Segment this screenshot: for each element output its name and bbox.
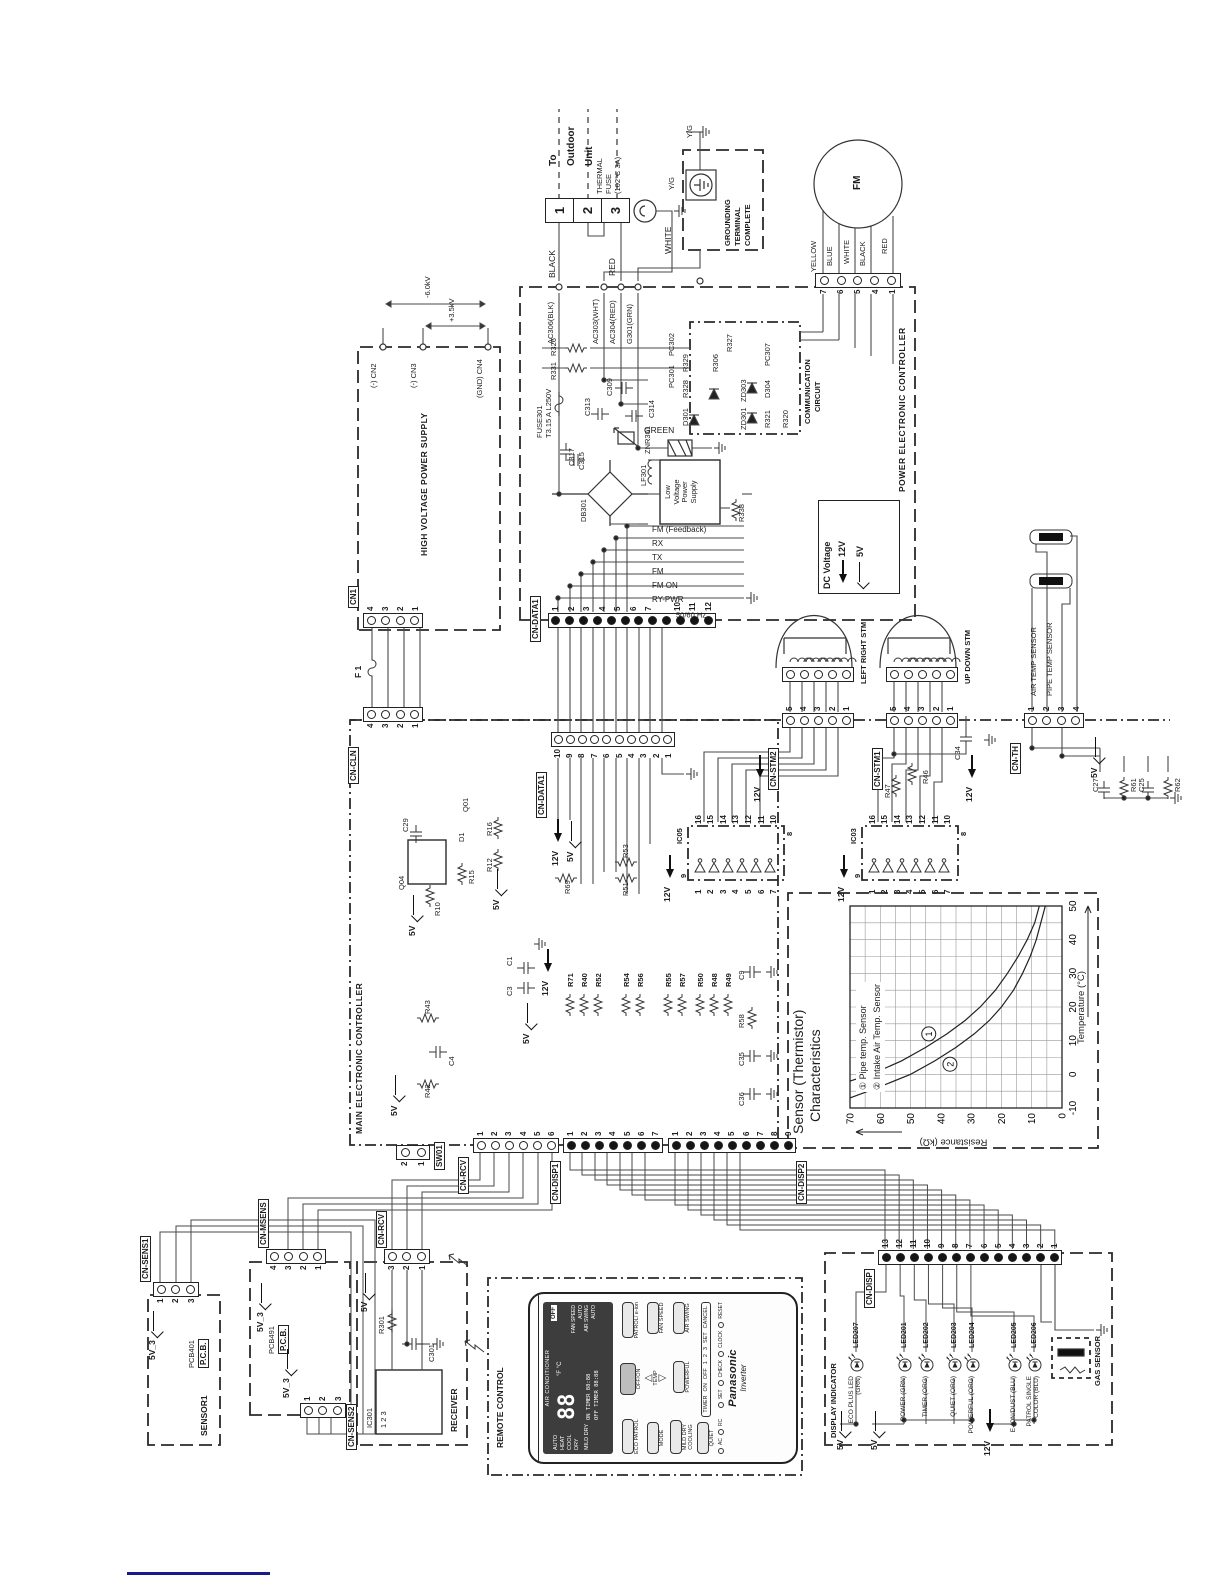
- pin-number: 1: [417, 1162, 426, 1166]
- 12v-arrow-icon: [666, 866, 674, 878]
- pin-number: 5: [623, 1132, 632, 1136]
- svg-text:40: 40: [1068, 934, 1079, 946]
- svg-text:50: 50: [906, 1113, 917, 1125]
- pcb491-label: PCB491: [268, 1326, 277, 1354]
- 5v-label: 5V: [521, 1034, 531, 1044]
- pin-number: 1: [411, 724, 420, 728]
- pin-number: 7: [756, 1132, 765, 1136]
- svg-text:40: 40: [936, 1113, 947, 1125]
- pin-dot: [887, 276, 896, 285]
- fm-wire-red: RED: [881, 238, 890, 254]
- pin-dot: [896, 1253, 905, 1262]
- pin-dot: [946, 716, 955, 725]
- pin-dot: [333, 1406, 342, 1415]
- svg-text:0: 0: [1058, 1113, 1069, 1119]
- r53-label: R53: [622, 844, 631, 858]
- pin-number: 9: [937, 1239, 946, 1248]
- remote-buttons: ECO PATROL OFF/ON PATROL/ e-ion MODE △ T…: [615, 1294, 750, 1462]
- pin-number: 2: [396, 724, 405, 728]
- signal-label: FM: [652, 567, 748, 576]
- pin-dot: [770, 1141, 779, 1150]
- r301-label: R301: [378, 1316, 387, 1334]
- cn-msens-connector: 4321: [266, 1249, 326, 1270]
- pin-number: 3: [639, 749, 648, 758]
- fm-wire-blue: BLUE: [826, 246, 835, 266]
- cn1-connector: 4321: [363, 607, 423, 628]
- pin-number: 14: [893, 815, 902, 824]
- pin-number: 1: [946, 707, 955, 711]
- led-icon: [964, 1351, 980, 1373]
- r10-label: R10: [434, 902, 443, 916]
- resistor-label: R49: [724, 973, 733, 987]
- cn-th-connector: 1234: [1024, 707, 1084, 728]
- cn-data1-main-label: CN-DATA1: [536, 772, 547, 818]
- pin-dot: [609, 1141, 618, 1150]
- ac304-label: AC304(RED): [609, 300, 618, 344]
- pin-number: 13: [881, 1239, 890, 1248]
- pin-dot: [882, 1253, 891, 1262]
- led-id: LED207: [853, 1322, 860, 1348]
- brand-sub: Inverter: [739, 1302, 748, 1454]
- pin-dot: [304, 1406, 313, 1415]
- cn-disp1-label: CN-DISP1: [550, 1161, 561, 1204]
- led-function-label: PATROL SINGLE COLOR (BLU): [1027, 1376, 1041, 1438]
- led-icon: [918, 1351, 934, 1373]
- 5v-arrow-icon: [1092, 746, 1100, 758]
- pin-dot: [270, 1252, 279, 1261]
- pin-number: 3: [917, 707, 926, 711]
- led-row: TIMER (ORG) LED202: [918, 1318, 934, 1438]
- ic03-label: IC03: [850, 828, 859, 844]
- 12v-arrow-icon: [968, 766, 976, 778]
- pin-dot: [410, 616, 419, 625]
- cn-stm2-connector: 54321: [782, 707, 854, 728]
- 5v-arrow-icon: [872, 1420, 880, 1432]
- fm-wire-yellow: YELLOW: [810, 241, 819, 272]
- pin-dot: [1036, 1253, 1045, 1262]
- r46-label: R46: [922, 770, 931, 784]
- sensor1-title: SENSOR1: [200, 1395, 210, 1436]
- pin-number: 1: [694, 890, 703, 894]
- 5v3-label: 5V_3: [281, 1378, 291, 1398]
- pin-number: 12: [918, 815, 927, 824]
- cn-rcv-recv-label: CN-RCV: [376, 1211, 387, 1248]
- pin-dot: [367, 710, 376, 719]
- pin-number: 2: [828, 707, 837, 711]
- chart-title-2: Characteristics: [807, 1029, 823, 1122]
- resistor-row: R55: [662, 952, 674, 1016]
- led-icon: [1006, 1351, 1022, 1373]
- r47-label: R47: [884, 784, 893, 798]
- pin-dot: [932, 670, 941, 679]
- pin-dot: [870, 276, 879, 285]
- air-temp-sensor-label: AIR TEMP SENSOR: [1030, 627, 1039, 696]
- r58-label: R58: [738, 1014, 747, 1028]
- ic05-label: IC05: [676, 828, 685, 844]
- 5v-label: 5V: [869, 1440, 879, 1450]
- fm-motor-label: FM: [852, 176, 864, 190]
- pin-number: 2: [567, 602, 576, 611]
- ic05-pins-right: 16151413121110: [692, 815, 780, 824]
- resistor-label: R71: [566, 973, 575, 987]
- fm-connector: 76541: [815, 273, 901, 294]
- pin-number: 1: [476, 1132, 485, 1136]
- 12v-label: 12V: [752, 787, 762, 802]
- lcd-off-badge: OFF: [551, 1305, 557, 1321]
- resistor-row: R54: [620, 952, 632, 1016]
- legend-5v: 5V: [855, 546, 865, 557]
- link-underline[interactable]: [127, 1572, 270, 1575]
- r62-label: R62: [1174, 778, 1183, 792]
- pin-dot: [477, 1141, 486, 1150]
- pin-dot: [1022, 1253, 1031, 1262]
- power-title: POWER ELECTRONIC CONTROLLER: [898, 327, 908, 492]
- dc-legend-title: DC Voltage: [822, 505, 832, 589]
- pin-dot: [551, 616, 560, 625]
- pin-dot: [607, 616, 616, 625]
- pin-dot: [1057, 716, 1066, 725]
- resistor-icon: [621, 990, 631, 1016]
- pin-number: 16: [694, 815, 703, 824]
- led-row: POWER (GRN) LED201: [896, 1318, 912, 1438]
- 5v-label: 5V: [491, 900, 501, 910]
- pin-number: 13: [905, 815, 914, 824]
- pin-number: 3: [813, 707, 822, 711]
- ic03-pin8: 8: [960, 832, 969, 836]
- zd301-label: ZD301: [740, 407, 749, 430]
- led-function-label: TIMER (ORG): [923, 1376, 930, 1438]
- remote-title: REMOTE CONTROL: [496, 1367, 506, 1448]
- svg-text:70: 70: [846, 1113, 857, 1125]
- pin-number: 11: [909, 1239, 918, 1248]
- pin-dot: [627, 735, 636, 744]
- pin-number: 3: [381, 607, 390, 611]
- resistor-icon: [579, 990, 589, 1016]
- pin-number: 6: [742, 1132, 751, 1136]
- 12v-arrow-icon: [986, 1420, 994, 1432]
- pin-number: 2: [685, 1132, 694, 1136]
- cn-sens2-connector: 123: [300, 1397, 346, 1418]
- pin-number: 2: [402, 1266, 411, 1270]
- led-icon: [848, 1351, 864, 1373]
- led-id: LED203: [951, 1322, 958, 1348]
- pin-number: 2: [299, 1266, 308, 1270]
- c301-label: C301: [428, 1344, 437, 1362]
- pin-number: 9: [565, 749, 574, 758]
- 12v-arrow-icon: [554, 830, 562, 842]
- pin-number: 1: [1027, 707, 1036, 711]
- pin-number: 10: [943, 815, 952, 824]
- pin-number: 3: [594, 1132, 603, 1136]
- temp-down-icon: ▽: [657, 1374, 668, 1382]
- to-outdoor-1: To: [548, 155, 560, 166]
- grounding-1: GROUNDING: [724, 199, 733, 246]
- pin-dot: [842, 670, 851, 679]
- pin-dot: [662, 616, 671, 625]
- pin-dot: [396, 710, 405, 719]
- resistor-row: R50: [694, 952, 706, 1016]
- pin-number: 5: [744, 890, 753, 894]
- 5v-label: 5V: [565, 852, 575, 862]
- pin-number: 2: [400, 1162, 409, 1166]
- resistor-row: R57: [676, 952, 688, 1016]
- kv2-label: +3.5kV: [448, 298, 457, 322]
- comm-title-2: CIRCUIT: [814, 382, 823, 412]
- lvps-label: LowVoltage PowerSupply: [664, 462, 699, 522]
- pin-dot: [410, 710, 419, 719]
- pin-dot: [578, 735, 587, 744]
- remote-ir-cap: [530, 1294, 539, 1462]
- pin-number: 3: [284, 1266, 293, 1270]
- 5v-arrow-icon: [410, 904, 418, 916]
- air-swing-button: [673, 1302, 685, 1334]
- svg-text:0: 0: [1068, 1071, 1079, 1077]
- pin-number: 8: [770, 1132, 779, 1136]
- 5v-arrow-icon: [524, 1012, 532, 1024]
- pin-dot: [651, 1141, 660, 1150]
- pin-number: 6: [637, 1132, 646, 1136]
- pin-dot: [505, 1141, 514, 1150]
- 5v-arrow-icon: [494, 878, 502, 890]
- lcd-temp-units: °F °C: [557, 1362, 565, 1376]
- fm-wire-white: WHITE: [843, 240, 852, 264]
- pin-dot: [381, 616, 390, 625]
- led-id: LED201: [901, 1322, 908, 1348]
- pin-number: 5: [613, 602, 622, 611]
- pin-dot: [828, 670, 837, 679]
- hvps-title: HIGH VOLTAGE POWER SUPPLY: [420, 413, 430, 557]
- wire-red-label: RED: [608, 258, 618, 276]
- 12v-label: 12V: [540, 981, 550, 996]
- pin-number: 6: [980, 1239, 989, 1248]
- cn-disp1-connector: 1234567: [563, 1132, 663, 1153]
- pin-number: 7: [590, 749, 599, 758]
- led-function-label: ECO PLUS LED (GRN): [849, 1376, 863, 1438]
- pin-number: 5: [615, 749, 624, 758]
- r329-label: R329: [682, 354, 691, 372]
- 5v-arrow-icon: [392, 1084, 400, 1096]
- pin-number: 4: [366, 607, 375, 611]
- resistor-icon: [695, 990, 705, 1016]
- pin-dot: [686, 1141, 695, 1150]
- pin-number: 5: [785, 707, 794, 711]
- resistor-icon: [677, 990, 687, 1016]
- led-id: LED204: [969, 1322, 976, 1348]
- 5v-arrow-icon: [150, 1320, 158, 1332]
- pin-dot: [918, 670, 927, 679]
- led-icon: [946, 1351, 962, 1373]
- pin-number: 4: [598, 602, 607, 611]
- pin-number: 16: [868, 815, 877, 824]
- powerful-button: [673, 1361, 685, 1393]
- c313-label: C313: [584, 398, 593, 416]
- pin-number: 15: [880, 815, 889, 824]
- pc301-label: PC301: [668, 365, 677, 388]
- 5v-arrow-icon: [284, 1358, 292, 1370]
- pin-number: 2: [171, 1299, 180, 1303]
- 12v-label: 12V: [662, 887, 672, 902]
- d304-label: D304: [764, 380, 773, 398]
- cn-rcv-main-connector: 123456: [473, 1132, 559, 1153]
- dc-voltage-legend: DC Voltage 12V 5V: [818, 500, 900, 594]
- pin-dot: [700, 1141, 709, 1150]
- stm2-motor-connector: [782, 667, 854, 682]
- r321-label: R321: [764, 410, 773, 428]
- c1-label: C1: [506, 956, 515, 966]
- fuse301-rating: T3.15 A L250V: [545, 389, 554, 438]
- fm-pin-number: 6: [836, 290, 845, 294]
- 12v-label: 12V: [982, 1441, 992, 1456]
- left-right-stm-label: LEFT RIGHT STM: [860, 622, 869, 684]
- chart-xlabel: Temperature (°C): [1076, 971, 1087, 1044]
- pin-dot: [566, 735, 575, 744]
- q04-label: Q04: [398, 876, 407, 890]
- signal-label: FM (Feedback): [652, 525, 748, 534]
- pin-number: 4: [519, 1132, 528, 1136]
- pc302-label: PC302: [668, 333, 677, 356]
- pin-number: 3: [334, 1397, 343, 1401]
- pin-number: 1: [842, 707, 851, 711]
- signal-label: TX: [652, 553, 748, 562]
- to-outdoor-2: Outdoor: [566, 127, 578, 166]
- pin-dot: [388, 1252, 397, 1261]
- resistor-row: R71: [564, 952, 576, 1016]
- r338-label: R338: [738, 504, 747, 522]
- pin-number: 5: [994, 1239, 1003, 1248]
- led-id: LED206: [1031, 1322, 1038, 1348]
- pin-dot: [637, 1141, 646, 1150]
- pin-number: 11: [757, 815, 766, 824]
- pin-number: 5: [727, 1132, 736, 1136]
- stm1-motor-connector: [886, 667, 958, 682]
- r16-label: R16: [486, 822, 495, 836]
- 12v-arrow-icon: [544, 960, 552, 972]
- 5v-label: 5V: [835, 1440, 845, 1450]
- cn-sens2-label: CN-SENS2: [346, 1404, 357, 1450]
- receiver-title: RECEIVER: [450, 1389, 460, 1432]
- c309-label: C309: [606, 378, 615, 396]
- pin-dot: [381, 710, 390, 719]
- pin-dot: [786, 670, 795, 679]
- pin-number: 13: [731, 815, 740, 824]
- pc307-label: PC307: [764, 343, 773, 366]
- pin-dot: [1071, 716, 1080, 725]
- led-function-label: POWERFUL (ORG): [969, 1376, 976, 1438]
- ac-rc-holes: ACRC: [718, 1419, 724, 1454]
- pin-number: 8: [951, 1239, 960, 1248]
- resistor-label: R54: [622, 973, 631, 987]
- resistor-icon: [635, 990, 645, 1016]
- lcd-modes: AUTOHEAT COOLDRY MILD DRY: [553, 1424, 590, 1450]
- ic03-pin9: 9: [854, 874, 863, 878]
- ic03-pins-right: 16151413121110: [866, 815, 954, 824]
- resistor-label: R52: [594, 973, 603, 987]
- resistor-icon: [723, 990, 733, 1016]
- c29-label: C29: [402, 818, 411, 832]
- pin-dot: [171, 1285, 180, 1294]
- pin-number: 6: [547, 1132, 556, 1136]
- pin-dot: [318, 1406, 327, 1415]
- to-outdoor-3: Unit: [584, 147, 596, 166]
- pin-number: 4: [799, 707, 808, 711]
- gas-sensor-label: GAS SENSOR: [1094, 1336, 1103, 1386]
- g301-label: G301(GRN): [626, 304, 635, 344]
- outdoor-terminal-block: 123: [545, 198, 630, 223]
- cn-disp-connector: 13121110987654321: [878, 1239, 1062, 1265]
- wire-black-label: BLACK: [548, 250, 558, 278]
- sw01-label: SW01: [434, 1142, 445, 1170]
- pin-number: 6: [629, 602, 638, 611]
- 12v-arrow-icon: [840, 866, 848, 878]
- terminal-cell: 3: [602, 199, 629, 222]
- c25-label: C25: [1138, 778, 1147, 792]
- brand-logo: Panasonic: [727, 1302, 739, 1454]
- 12v-label: 12V: [836, 887, 846, 902]
- pin-number: 4: [713, 1132, 722, 1136]
- r15-label: R15: [468, 870, 477, 884]
- led-id: LED202: [923, 1322, 930, 1348]
- pin-dot: [663, 735, 672, 744]
- mode-button: [647, 1422, 659, 1454]
- c9-label: C9: [738, 970, 747, 980]
- pin-dot: [1050, 1253, 1059, 1262]
- c317-label: C317: [568, 448, 577, 466]
- 5v-label: 5V: [1089, 768, 1099, 778]
- fan-speed-button: [647, 1302, 659, 1334]
- pin-number: 4: [627, 749, 636, 758]
- pin-number: 3: [699, 1132, 708, 1136]
- pin-dot: [417, 1252, 426, 1261]
- remote-control: AIR CONDITIONER OFF AUTOHEAT COOLDRY MIL…: [528, 1292, 798, 1464]
- led-row: PATROL SINGLE COLOR (BLU) LED206: [1026, 1318, 1042, 1438]
- c36-label: C36: [738, 1092, 747, 1106]
- resistor-label: R50: [696, 973, 705, 987]
- f1-label: F 1: [354, 666, 364, 678]
- zd303-label: ZD303: [740, 379, 749, 402]
- 5v-label: 5V: [359, 1302, 369, 1312]
- pin-dot: [299, 1252, 308, 1261]
- pin-dot: [579, 616, 588, 625]
- pin-dot: [396, 616, 405, 625]
- pin-dot: [800, 716, 809, 725]
- ic301-label: IC301: [366, 1408, 375, 1428]
- r306-label: R306: [712, 354, 721, 372]
- lcd-timers: ON TIMER 88:88OFF TIMER 88:88: [585, 1370, 602, 1420]
- pin-number: 1: [418, 1266, 427, 1270]
- pin-dot: [800, 670, 809, 679]
- pin-number: 7: [651, 1132, 660, 1136]
- service-holes: SETCHECK CLOCKRESET: [718, 1302, 724, 1408]
- pin-number: 2: [1042, 707, 1051, 711]
- pin-dot: [402, 1252, 411, 1261]
- pin-dot: [621, 616, 630, 625]
- 5v-arrow-icon: [856, 571, 864, 583]
- cn-disp2-connector: 123456789: [668, 1132, 796, 1153]
- pin-dot: [814, 670, 823, 679]
- cn2-label: (-) CN2: [370, 363, 379, 388]
- pin-number: 1: [314, 1266, 323, 1270]
- resistor-icon: [565, 990, 575, 1016]
- cn-disp-label: CN-DISP: [864, 1269, 875, 1308]
- ac303-label: AC303(WHT): [592, 299, 601, 344]
- pin-dot: [491, 1141, 500, 1150]
- resistor-label: R48: [710, 973, 719, 987]
- pin-dot: [756, 1141, 765, 1150]
- pcb401-label: PCB401: [188, 1340, 197, 1368]
- pin-number: 11: [931, 815, 940, 824]
- c35-label: C35: [738, 1052, 747, 1066]
- pin-number: 1: [664, 749, 673, 758]
